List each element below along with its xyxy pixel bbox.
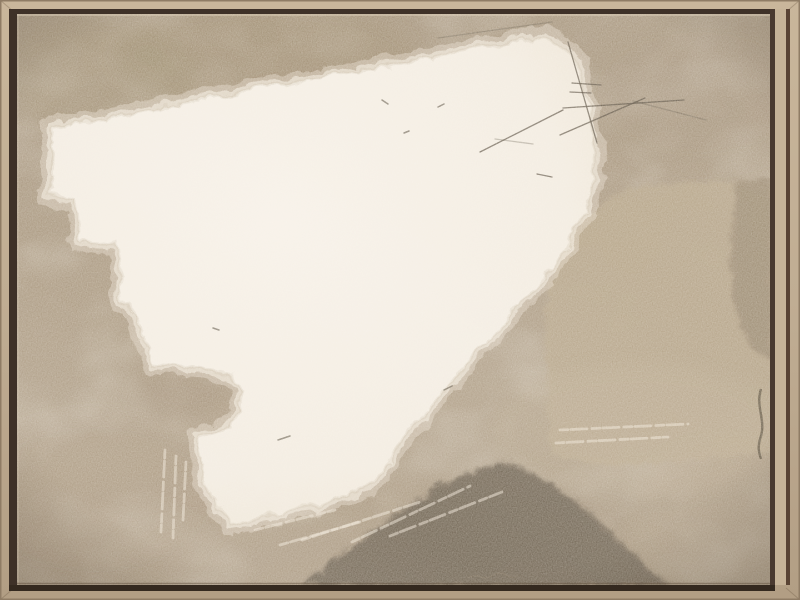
- frame-groove-right: [770, 9, 775, 585]
- frame-groove-bottom: [9, 585, 775, 591]
- vignette: [17, 14, 770, 585]
- frame-groove-top: [9, 9, 775, 14]
- framed-artwork-photo: [0, 0, 800, 600]
- frame-lip-right: [775, 9, 786, 585]
- painting-canvas: [0, 5, 800, 600]
- artwork-svg: [0, 0, 800, 600]
- frame-groove-left: [9, 9, 17, 585]
- frame-shadow-right: [786, 9, 790, 585]
